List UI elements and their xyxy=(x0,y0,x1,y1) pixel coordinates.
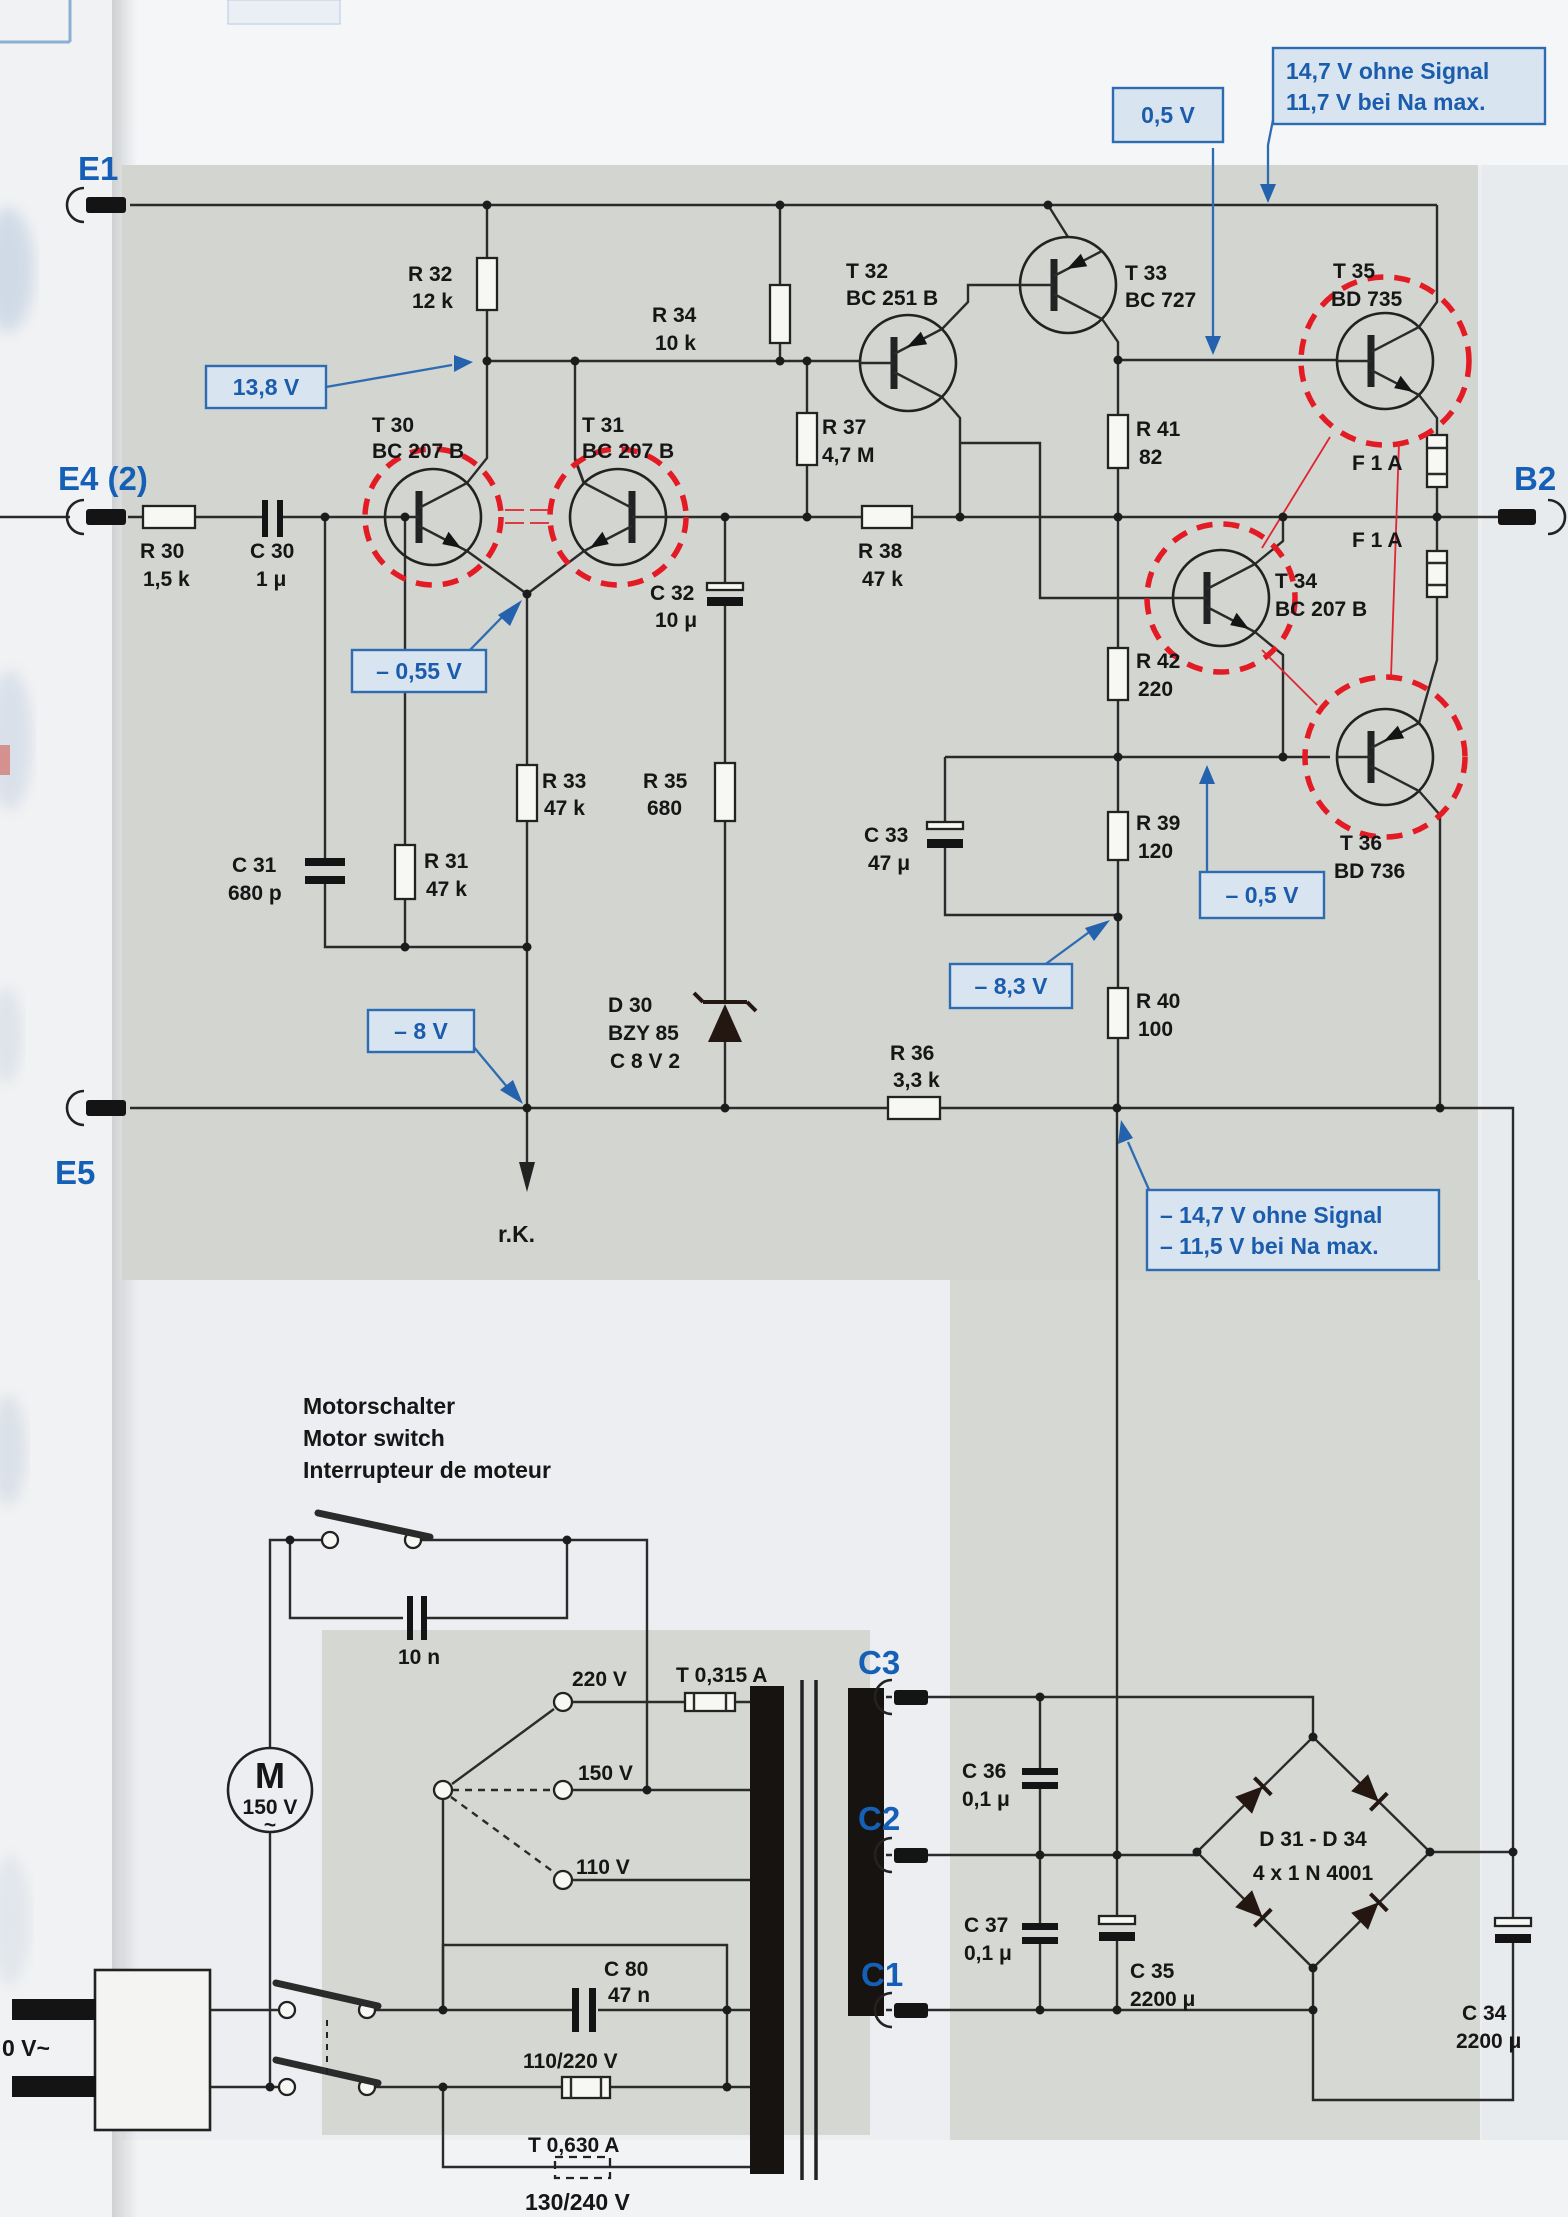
label-c33-val: 47 μ xyxy=(868,852,910,875)
label-r37-ref: R 37 xyxy=(822,416,866,439)
label-r42-ref: R 42 xyxy=(1136,650,1180,673)
selector-110v-contact xyxy=(554,1871,572,1889)
label-r40-ref: R 40 xyxy=(1136,990,1180,1013)
resistor-r31 xyxy=(395,845,415,899)
resistor-r32 xyxy=(477,258,497,310)
resistor-r30 xyxy=(143,506,195,528)
resistor-r35 xyxy=(715,763,735,821)
label-r31-ref: R 31 xyxy=(424,850,469,873)
label-fuse-t0630: T 0,630 A xyxy=(528,2134,619,2157)
label-r40-val: 100 xyxy=(1138,1018,1173,1041)
label-r42-val: 220 xyxy=(1138,678,1173,701)
label-motor-ac: ~ xyxy=(264,1814,276,1837)
label-c36-val: 0,1 μ xyxy=(962,1788,1010,1811)
label-d30-ref: D 30 xyxy=(608,994,652,1017)
page-bleed-artifact xyxy=(0,745,10,775)
label-t31-ref: T 31 xyxy=(582,414,624,437)
label-d30-part: BZY 85 xyxy=(608,1022,679,1045)
label-fuse-110-220: 110/220 V xyxy=(523,2050,618,2073)
label-r31-val: 47 k xyxy=(426,878,467,901)
transformer-primary-winding xyxy=(750,1686,784,2174)
callout-m8-3v: – 8,3 V xyxy=(975,973,1049,999)
label-switch-fr: Interrupteur de moteur xyxy=(303,1457,551,1483)
label-e4: E4 (2) xyxy=(58,460,148,497)
scanned-schematic-page: 14,7 V ohne Signal 11,7 V bei Na max. 0,… xyxy=(0,0,1568,2217)
resistor-r38 xyxy=(862,506,912,528)
label-f1a-lower: F 1 A xyxy=(1352,529,1403,552)
label-r38-val: 47 k xyxy=(862,568,903,591)
label-motor-m: M xyxy=(255,1755,285,1796)
resistor-r36 xyxy=(888,1097,940,1119)
label-e5: E5 xyxy=(55,1154,95,1191)
label-t35-ref: T 35 xyxy=(1333,260,1375,283)
label-f1a-upper: F 1 A xyxy=(1352,452,1403,475)
label-r32-ref: R 32 xyxy=(408,263,452,286)
fuse-110-220 xyxy=(562,2077,610,2098)
fuse-f1a-upper xyxy=(1427,435,1447,487)
callout-top-right-line1: 14,7 V ohne Signal xyxy=(1286,58,1489,84)
label-r33-ref: R 33 xyxy=(542,770,586,793)
label-220v: 220 V xyxy=(572,1668,627,1691)
label-c30-ref: C 30 xyxy=(250,540,294,563)
label-r39-ref: R 39 xyxy=(1136,812,1180,835)
label-r38-ref: R 38 xyxy=(858,540,903,563)
page-bleed-artifact xyxy=(228,0,340,24)
label-c33-ref: C 33 xyxy=(864,824,908,847)
resistor-r37 xyxy=(797,413,817,465)
label-10n: 10 n xyxy=(398,1646,440,1669)
callout-bottom-line1: – 14,7 V ohne Signal xyxy=(1160,1202,1382,1228)
label-t32-part: BC 251 B xyxy=(846,287,938,310)
label-t30-ref: T 30 xyxy=(372,414,414,437)
label-c1: C1 xyxy=(861,1956,903,1993)
resistor-r41 xyxy=(1108,415,1128,468)
label-r37-val: 4,7 M xyxy=(822,444,875,467)
callout-0-5v: 0,5 V xyxy=(1141,102,1195,128)
label-b2: B2 xyxy=(1514,460,1556,497)
label-r35-val: 680 xyxy=(647,797,682,820)
label-rk: r.K. xyxy=(498,1221,535,1247)
label-bridge-ref: D 31 - D 34 xyxy=(1259,1828,1367,1851)
plug-prong xyxy=(12,2076,96,2097)
label-switch-en: Motor switch xyxy=(303,1425,445,1451)
label-r32-val: 12 k xyxy=(412,290,453,313)
label-t33-part: BC 727 xyxy=(1125,289,1196,312)
label-r30-val: 1,5 k xyxy=(143,568,190,591)
resistor-r39 xyxy=(1108,812,1128,860)
label-fuse-t0315: T 0,315 A xyxy=(676,1664,767,1687)
label-c32-ref: C 32 xyxy=(650,582,694,605)
label-t36-part: BD 736 xyxy=(1334,860,1405,883)
label-t34-part: BC 207 B xyxy=(1275,598,1367,621)
label-r41-val: 82 xyxy=(1139,446,1162,469)
label-r33-val: 47 k xyxy=(544,797,585,820)
callout-m8v: – 8 V xyxy=(394,1018,448,1044)
callout-m0-55v: – 0,55 V xyxy=(376,658,462,684)
label-r35-ref: R 35 xyxy=(643,770,688,793)
selector-220v-contact xyxy=(554,1693,572,1711)
label-t32-ref: T 32 xyxy=(846,260,888,283)
label-t31-part: BC 207 B xyxy=(582,440,674,463)
label-t30-part: BC 207 B xyxy=(372,440,464,463)
label-mains-voltage: 0 V~ xyxy=(2,2035,50,2061)
label-d30-volt: C 8 V 2 xyxy=(610,1050,680,1073)
label-c35-ref: C 35 xyxy=(1130,1960,1175,1983)
label-c31-ref: C 31 xyxy=(232,854,277,877)
fuse-f1a-lower xyxy=(1427,551,1447,597)
label-r34-val: 10 k xyxy=(655,332,696,355)
label-c37-val: 0,1 μ xyxy=(964,1942,1012,1965)
label-c36-ref: C 36 xyxy=(962,1760,1006,1783)
label-c31-val: 680 p xyxy=(228,882,282,905)
resistor-r33 xyxy=(517,765,537,821)
label-e1: E1 xyxy=(78,150,118,187)
label-c34-val: 2200 μ xyxy=(1456,2030,1521,2053)
label-t35-part: BD 735 xyxy=(1331,288,1403,311)
plug-prong xyxy=(12,1999,96,2020)
label-c80-ref: C 80 xyxy=(604,1958,648,1981)
callout-bottom-line2: – 11,5 V bei Na max. xyxy=(1160,1233,1379,1259)
schematic-canvas: 14,7 V ohne Signal 11,7 V bei Na max. 0,… xyxy=(0,0,1568,2217)
resistor-r42 xyxy=(1108,648,1128,700)
label-c2: C2 xyxy=(858,1800,900,1837)
resistor-r40 xyxy=(1108,988,1128,1038)
label-c35-val: 2200 μ xyxy=(1130,1988,1195,2011)
selector-wiper-contact xyxy=(434,1781,452,1799)
label-t34-ref: T 34 xyxy=(1275,570,1317,593)
label-110v: 110 V xyxy=(576,1856,630,1879)
label-switch-de: Motorschalter xyxy=(303,1393,455,1419)
callout-13-8v: 13,8 V xyxy=(233,374,300,400)
label-c34-ref: C 34 xyxy=(1462,2002,1507,2025)
label-r36-ref: R 36 xyxy=(890,1042,934,1065)
fuse-t0315 xyxy=(685,1693,735,1711)
label-r39-val: 120 xyxy=(1138,840,1173,863)
label-r36-val: 3,3 k xyxy=(893,1069,940,1092)
label-bridge-part: 4 x 1 N 4001 xyxy=(1253,1862,1374,1885)
label-150v: 150 V xyxy=(578,1762,633,1785)
label-c32-val: 10 μ xyxy=(655,609,697,632)
label-c80-val: 47 n xyxy=(608,1984,650,2007)
label-130-240: 130/240 V xyxy=(525,2189,631,2215)
callout-m0-5v: – 0,5 V xyxy=(1226,882,1300,908)
label-t33-ref: T 33 xyxy=(1125,262,1167,285)
label-c30-val: 1 μ xyxy=(256,568,286,591)
resistor-r34 xyxy=(770,285,790,343)
label-r41-ref: R 41 xyxy=(1136,418,1181,441)
label-r30-ref: R 30 xyxy=(140,540,184,563)
selector-150v-contact xyxy=(554,1781,572,1799)
callout-top-right-line2: 11,7 V bei Na max. xyxy=(1286,89,1485,115)
label-c3: C3 xyxy=(858,1644,900,1681)
label-t36-ref: T 36 xyxy=(1340,832,1382,855)
label-c37-ref: C 37 xyxy=(964,1914,1008,1937)
label-r34-ref: R 34 xyxy=(652,304,697,327)
